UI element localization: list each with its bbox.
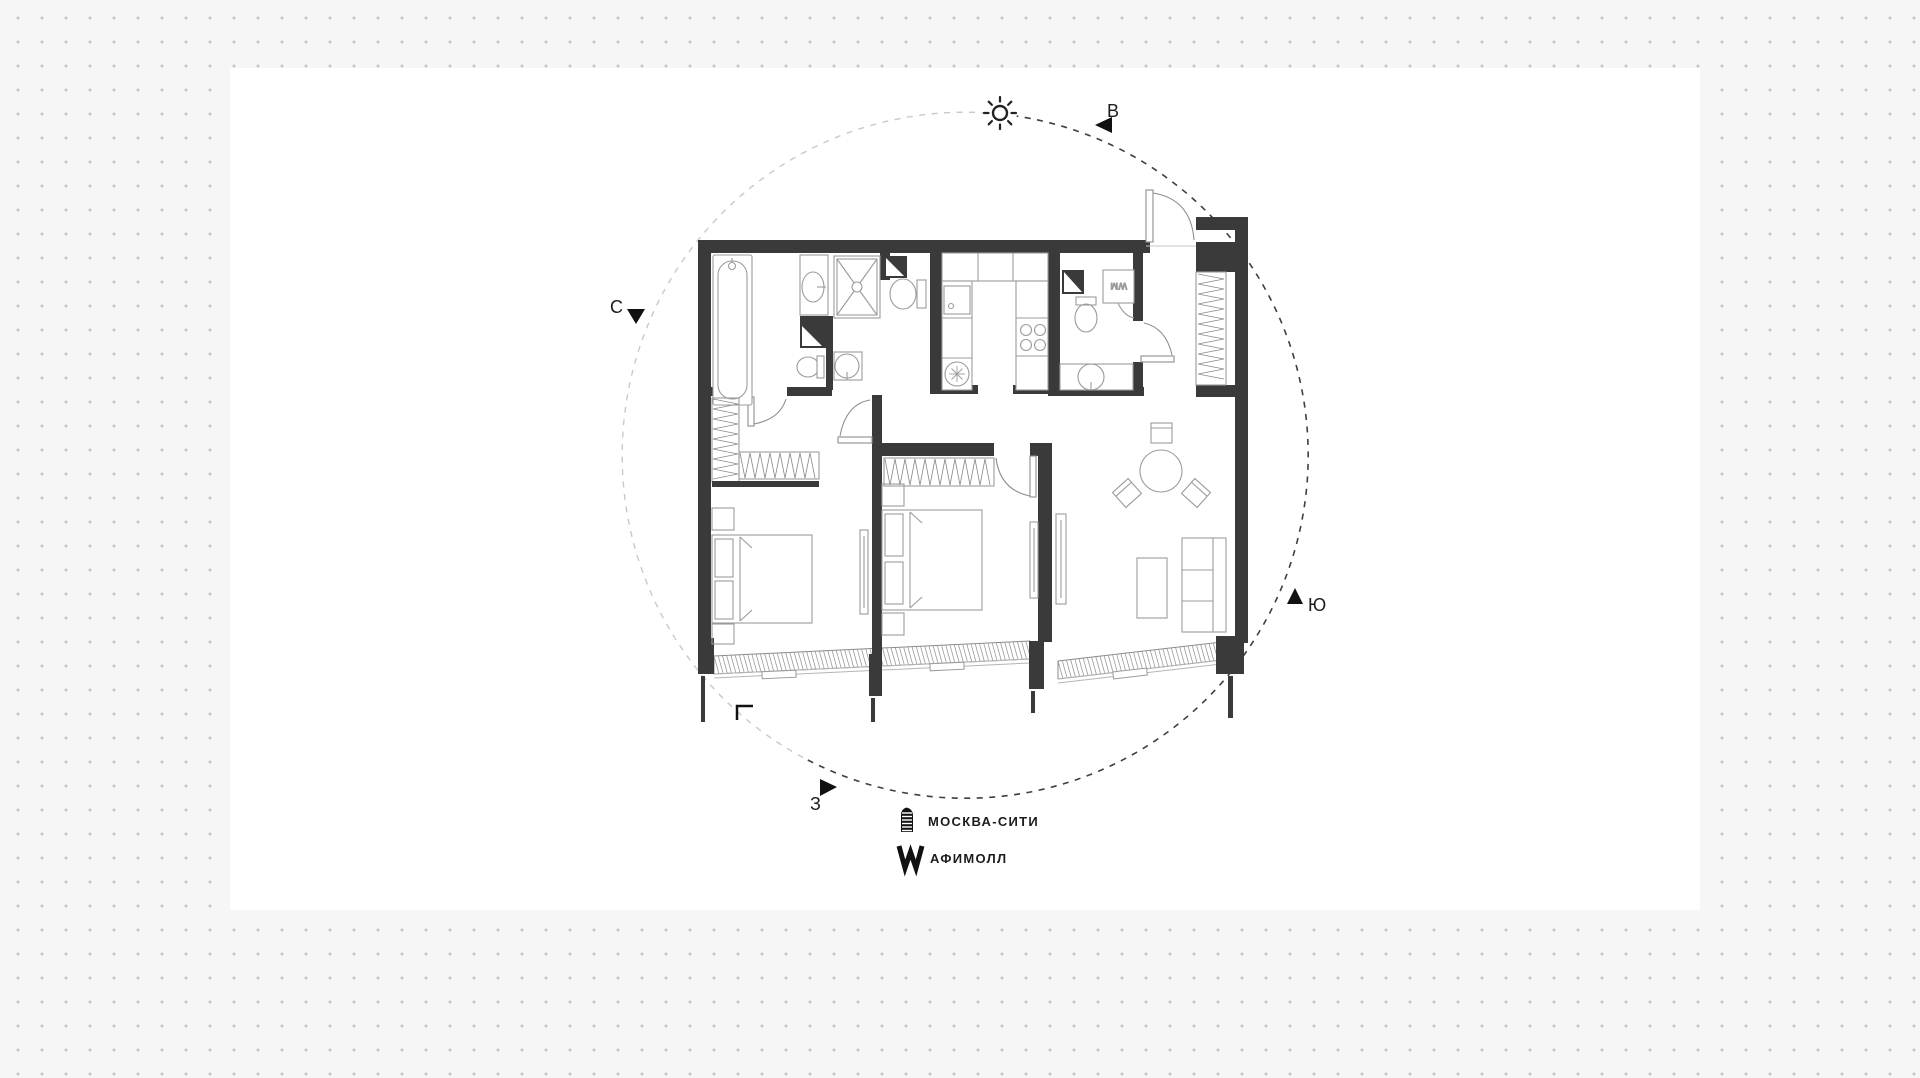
entry-hall [1196,272,1226,385]
bathroom-door-swing [754,399,786,424]
sink-counter [834,352,862,380]
wall-bath-divider [826,316,833,390]
sun-icon [983,96,1017,130]
compass-south-label: Ю [1308,595,1326,615]
floor-plan-scene: В С Ю З [0,0,1920,1078]
wardrobe-hatch [740,453,815,478]
bedroom-1 [712,398,868,644]
wardrobe-hatch [885,459,990,485]
bathroom-shower [834,256,926,380]
wall-right [1235,217,1248,643]
wall-corridor-stub [872,395,882,445]
compass-east-label: В [1107,101,1119,121]
wall-closet-bottom [1196,385,1236,397]
toilet-tank [917,280,926,308]
toilet-tank [817,356,824,378]
wall-closet-top [1196,242,1236,272]
nightstand [882,613,904,635]
compass-north-label: С [610,297,623,317]
compass-west-arrow-icon [820,779,837,796]
nightstand [882,484,904,506]
compass-south-arrow-icon [1287,588,1303,604]
wall-bath-bottom-b [787,387,832,396]
bathroom-master [713,255,828,405]
wall-bedroom2-top [882,443,994,456]
dining-table [1140,450,1182,492]
shower-room-door-swing [840,400,870,436]
compass-east-arrow-icon [1095,117,1112,133]
sofa [1182,538,1226,632]
wall-bedroom2-living [1038,450,1052,642]
dining-chair [1151,423,1172,443]
moscow-city-tower-icon [901,808,913,833]
compass-west-label: З [810,794,821,814]
bedroom2-door-leaf [1030,456,1036,497]
wall-bath-divider-h [800,316,833,324]
shower-drain-icon [852,282,862,292]
sink-counter [1060,364,1133,390]
wardrobe-hatch [713,399,738,479]
facade [698,636,1244,722]
window-frame [930,662,964,671]
shower-room-door-leaf [838,437,872,443]
washing-machine-label: WM [1110,281,1127,291]
kitchen-upper-cabinets [942,253,1048,281]
bed [882,510,982,610]
wall-left [698,240,711,653]
nightstand [712,624,734,644]
nightstand [712,508,734,530]
living-room [1056,423,1226,632]
toilet-bowl [890,279,916,309]
kitchen-counter-right [1016,281,1048,390]
wall-top [698,240,1150,253]
bed [712,535,812,623]
wall-bath-kitchen [930,253,942,390]
legend-moscow-city-label: МОСКВА-СИТИ [928,814,1039,829]
dining-chair [1182,479,1211,508]
wardrobe-side [712,481,819,487]
wc-door-swing [1144,323,1172,355]
wall-kitchen-wc [1048,253,1060,390]
window-frame [762,670,796,679]
wm-door-arc [1118,303,1134,318]
bedroom-2 [882,458,1038,635]
compass-north-arrow-icon [627,309,645,324]
dining-chair [1113,479,1142,508]
entry-door-swing [1153,193,1194,240]
afimall-w-icon [899,846,922,868]
toilet-bowl [1075,304,1097,332]
coffee-table [1137,558,1167,618]
toilet-bowl [797,357,819,377]
entry-door-leaf [1146,190,1153,242]
wc: WM [1060,270,1134,390]
wc-door-leaf [1141,356,1174,362]
bedroom2-door-swing [996,458,1030,496]
legend: МОСКВА-СИТИ АФИМОЛЛ [899,808,1039,869]
kitchen [942,253,1048,390]
legend-afimall-label: АФИМОЛЛ [930,851,1007,866]
bathtub [713,255,752,405]
wall-bedroom1-bedroom2 [872,445,882,656]
